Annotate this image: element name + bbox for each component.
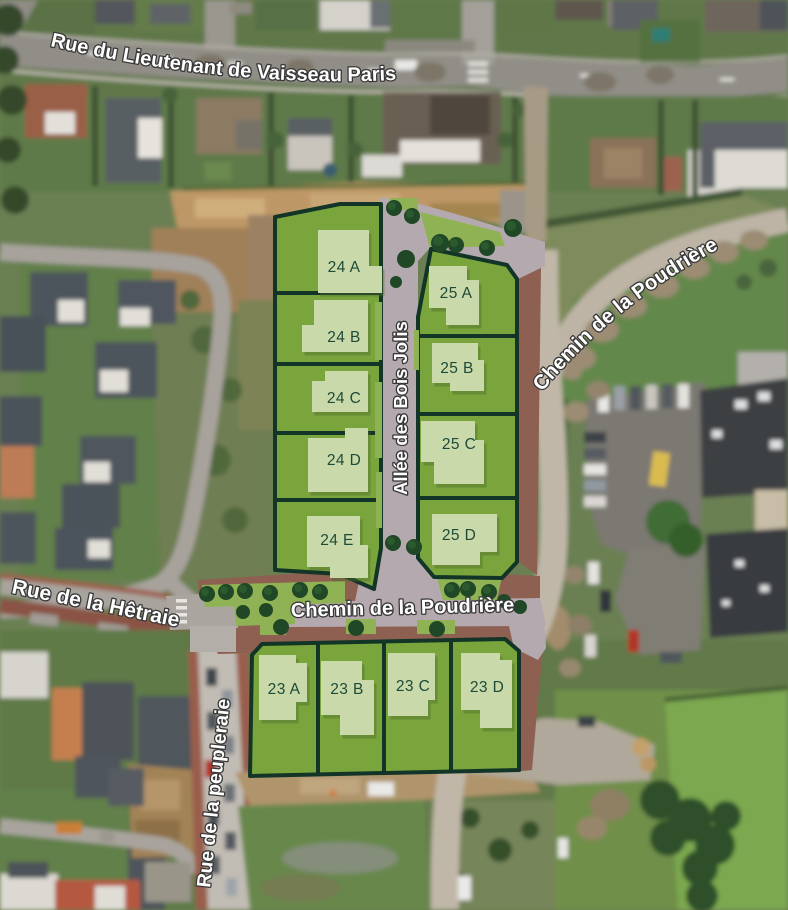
- svg-text:23 A: 23 A: [268, 681, 301, 698]
- svg-text:23 C: 23 C: [396, 678, 430, 695]
- svg-text:23 D: 23 D: [470, 679, 504, 696]
- svg-text:25 C: 25 C: [442, 436, 476, 453]
- svg-text:25 B: 25 B: [440, 360, 474, 377]
- svg-text:23 B: 23 B: [330, 681, 364, 698]
- svg-text:Allée des Bois Jolis: Allée des Bois Jolis: [390, 321, 411, 495]
- svg-text:24 E: 24 E: [320, 532, 354, 549]
- svg-text:24 D: 24 D: [327, 452, 361, 469]
- svg-text:25 A: 25 A: [440, 285, 473, 302]
- svg-text:24 C: 24 C: [327, 390, 361, 407]
- svg-text:25 D: 25 D: [442, 527, 476, 544]
- svg-text:24 A: 24 A: [328, 259, 361, 276]
- svg-text:24 B: 24 B: [327, 329, 361, 346]
